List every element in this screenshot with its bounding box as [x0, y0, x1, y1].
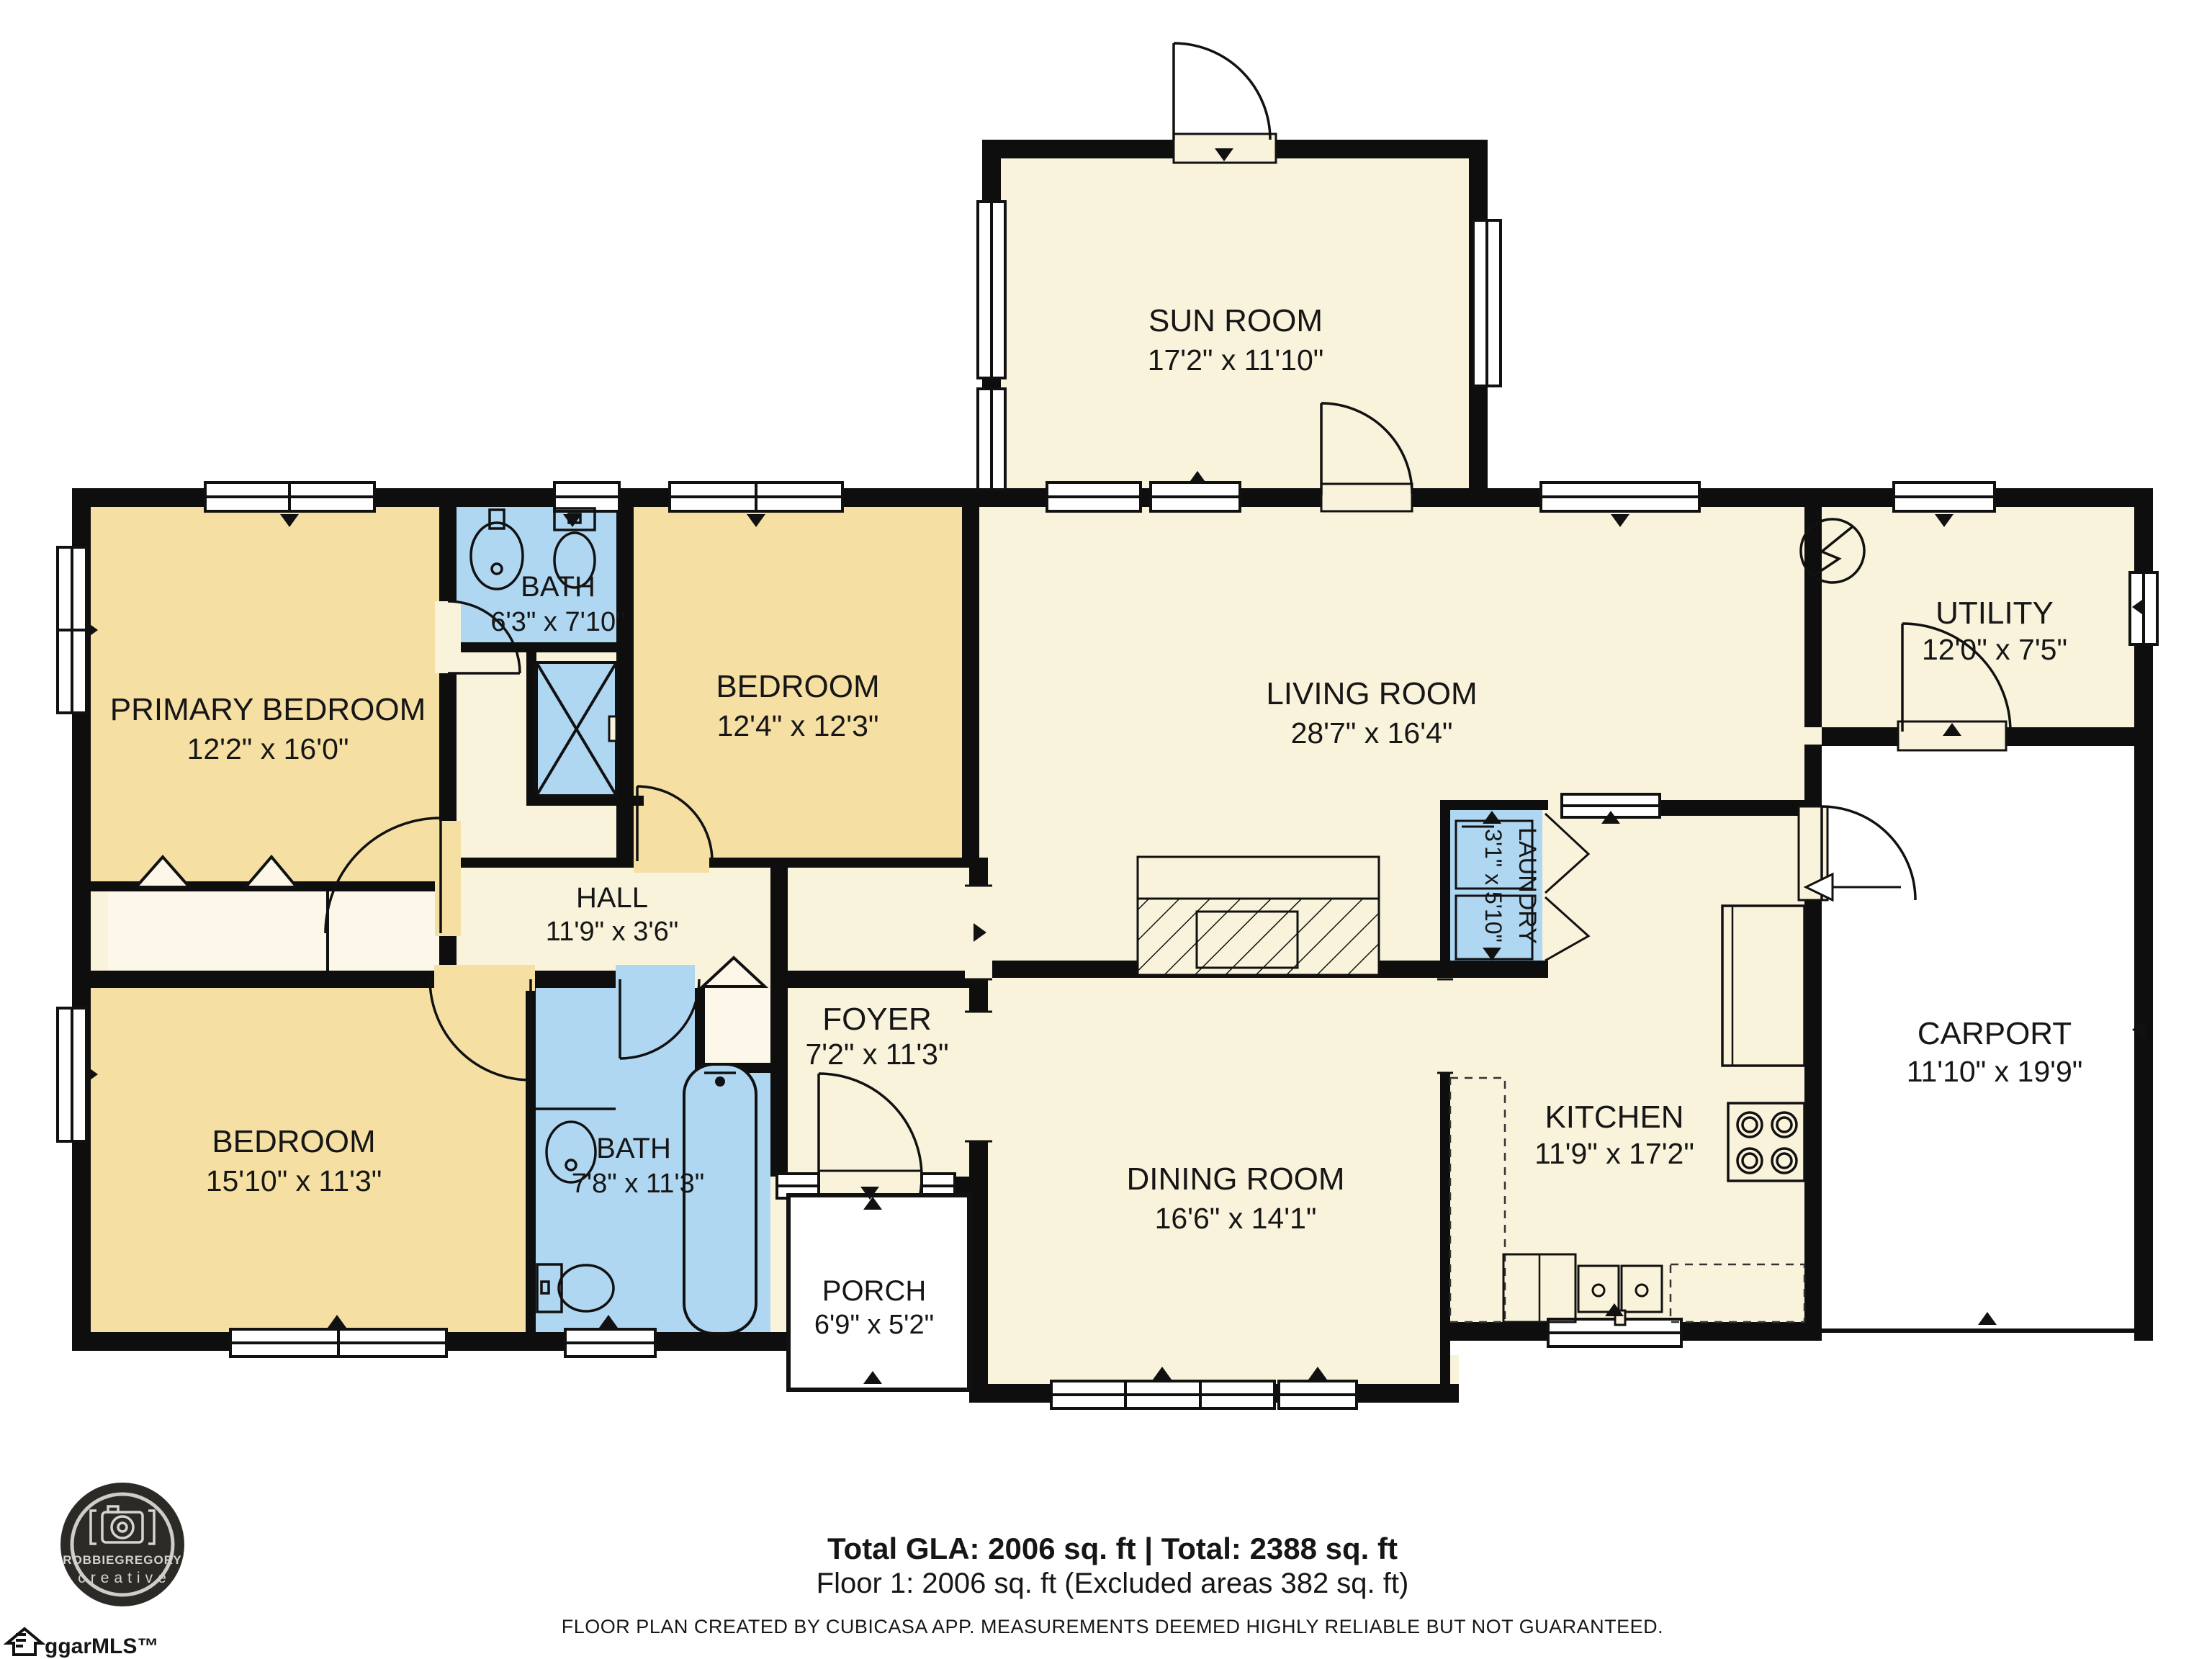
label-utility: UTILITY — [1935, 595, 2054, 631]
primary-closet-floor — [108, 891, 439, 971]
dims-laundry: 3'1" x 5'10" — [1480, 829, 1506, 943]
house-icon — [7, 1629, 42, 1655]
label-foyer: FOYER — [822, 1002, 932, 1037]
dims-dining-room: 16'6" x 14'1" — [1155, 1202, 1317, 1235]
refrigerator — [1722, 906, 1804, 1066]
bathtub — [684, 1064, 756, 1334]
window — [1894, 482, 1995, 511]
window — [565, 1329, 655, 1357]
fireplace — [1138, 857, 1379, 975]
window — [205, 482, 374, 511]
window — [1279, 1381, 1357, 1408]
dims-bedroom-top: 12'4" x 12'3" — [717, 709, 879, 742]
label-carport: CARPORT — [1917, 1016, 2072, 1051]
dims-bedroom-left: 15'10" x 11'3" — [206, 1164, 382, 1197]
window — [1051, 1381, 1274, 1408]
label-bedroom-left: BEDROOM — [212, 1124, 375, 1159]
window — [978, 389, 1005, 490]
window — [58, 1008, 86, 1141]
footer: Total GLA: 2006 sq. ft | Total: 2388 sq.… — [562, 1532, 1663, 1637]
label-bedroom-top: BEDROOM — [716, 669, 879, 704]
photographer-logo: ROBBIEGREGORY creative — [60, 1483, 184, 1606]
window — [1047, 482, 1141, 511]
label-laundry: LAUNDRY — [1514, 827, 1541, 944]
sun-room-exterior-door — [1174, 43, 1270, 140]
footer-disclaimer: FLOOR PLAN CREATED BY CUBICASA APP. MEAS… — [562, 1616, 1663, 1637]
label-sun-room: SUN ROOM — [1148, 303, 1323, 338]
dims-foyer: 7'2" x 11'3" — [805, 1038, 948, 1071]
window — [1473, 220, 1501, 386]
hall-closet-floor — [705, 988, 781, 1063]
dims-utility: 12'0" x 7'5" — [1922, 633, 2067, 666]
logo-sub: creative — [78, 1570, 171, 1586]
window — [554, 482, 619, 511]
bedroom-left-floor — [91, 988, 526, 1332]
label-primary-bedroom: PRIMARY BEDROOM — [110, 692, 426, 727]
window — [978, 202, 1005, 378]
dims-living-room: 28'7" x 16'4" — [1291, 716, 1453, 750]
label-hall: HALL — [576, 882, 648, 914]
window — [230, 1329, 446, 1357]
dims-kitchen: 11'9" x 17'2" — [1534, 1137, 1694, 1170]
dims-bath-top: 6'3" x 7'10" — [490, 607, 625, 637]
room-fills — [72, 140, 2153, 1403]
footer-floor: Floor 1: 2006 sq. ft (Excluded areas 382… — [817, 1568, 1409, 1599]
label-porch: PORCH — [822, 1275, 926, 1307]
mls-watermark: ggarMLS™ — [7, 1629, 158, 1658]
dims-hall: 11'9" x 3'6" — [546, 917, 678, 947]
dims-porch: 6'9" x 5'2" — [814, 1310, 934, 1340]
label-dining-room: DINING ROOM — [1126, 1161, 1344, 1197]
window — [1541, 482, 1699, 511]
label-living-room: LIVING ROOM — [1266, 676, 1477, 711]
dims-primary-bedroom: 12'2" x 16'0" — [187, 732, 349, 765]
label-kitchen: KITCHEN — [1545, 1100, 1683, 1135]
stove — [1728, 1103, 1804, 1181]
floor-plan-page: SUN ROOM 17'2" x 11'10" PRIMARY BEDROOM … — [0, 0, 2212, 1659]
dims-bath-bottom: 7'8" x 11'3" — [572, 1169, 704, 1199]
label-bath-top: BATH — [521, 571, 595, 603]
window — [670, 482, 842, 511]
label-bath-bottom: BATH — [596, 1133, 671, 1164]
window — [1151, 482, 1240, 511]
dims-sun-room: 17'2" x 11'10" — [1148, 343, 1324, 377]
logo-name: ROBBIEGREGORY — [63, 1553, 181, 1567]
floor-plan-canvas: SUN ROOM 17'2" x 11'10" PRIMARY BEDROOM … — [0, 0, 2212, 1659]
footer-totals: Total GLA: 2006 sq. ft | Total: 2388 sq.… — [827, 1532, 1398, 1566]
window — [58, 547, 86, 713]
dims-carport: 11'10" x 19'9" — [1907, 1055, 2083, 1088]
mls-text: ggarMLS™ — [45, 1635, 158, 1658]
